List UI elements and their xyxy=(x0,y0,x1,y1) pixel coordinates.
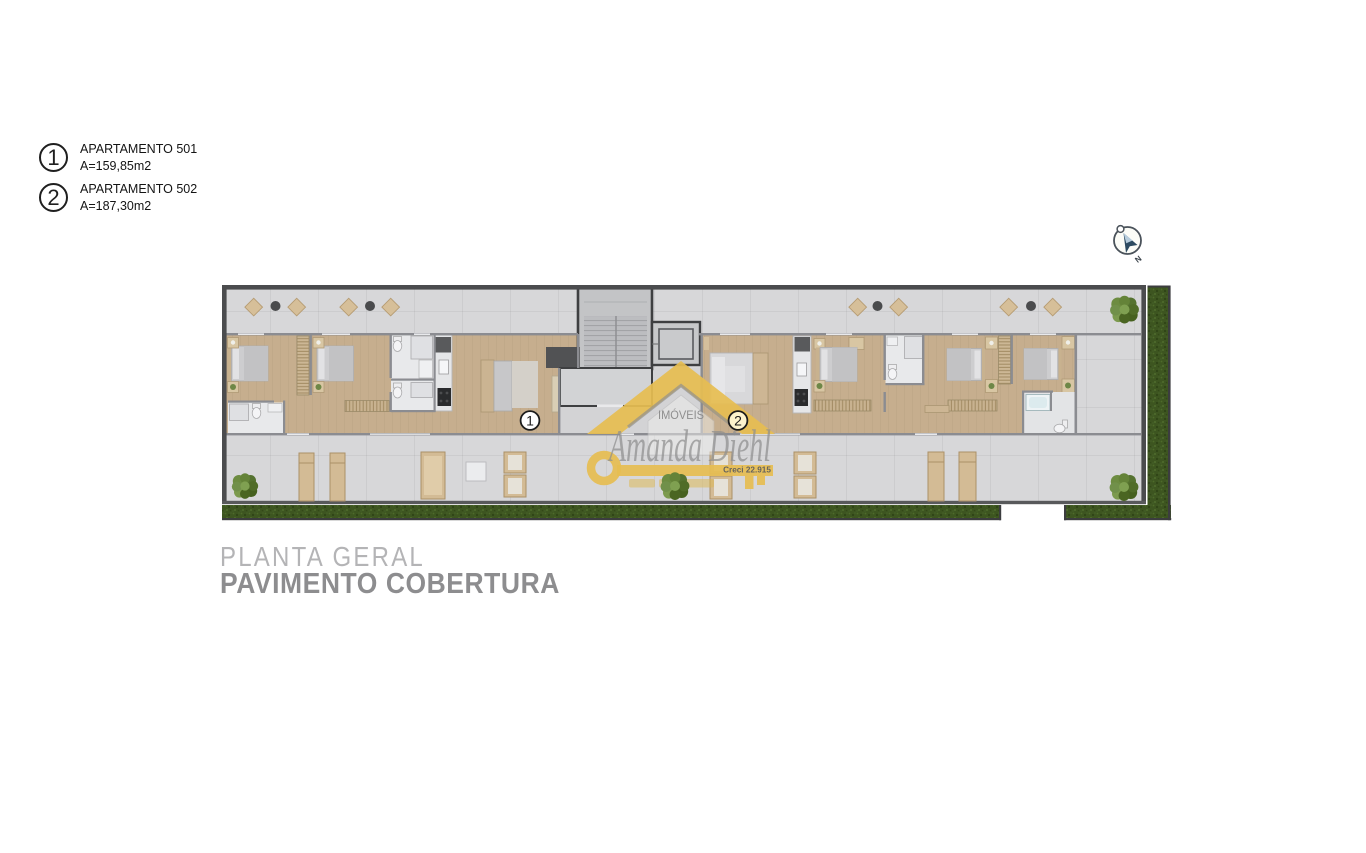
svg-text:1: 1 xyxy=(526,413,534,429)
svg-text:Creci 22.915: Creci 22.915 xyxy=(723,466,771,475)
svg-text:N: N xyxy=(1133,254,1143,265)
svg-text:2: 2 xyxy=(734,413,742,429)
svg-text:Amanda Diehl: Amanda Diehl xyxy=(607,420,771,471)
